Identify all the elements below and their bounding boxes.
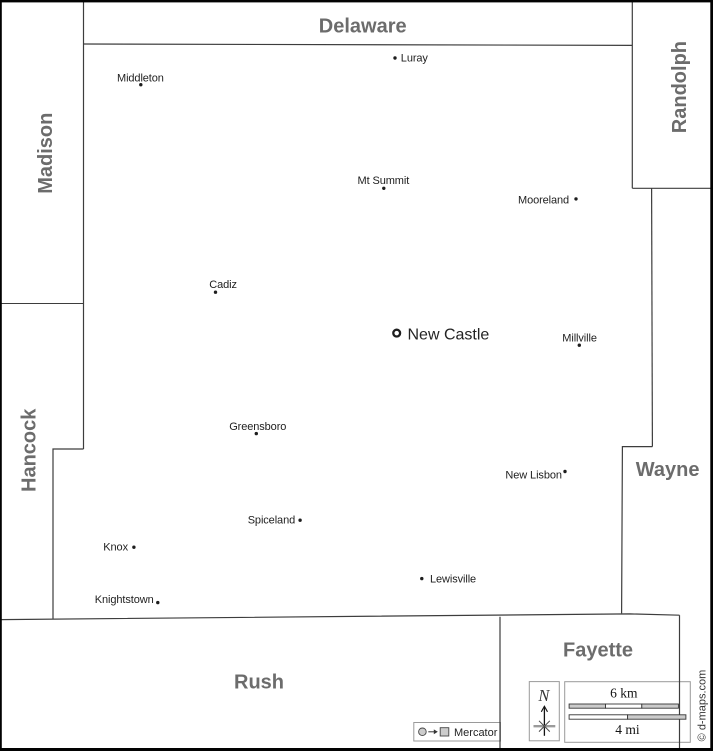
svg-text:4 mi: 4 mi	[615, 722, 640, 737]
svg-text:New Castle: New Castle	[408, 326, 490, 343]
svg-text:Greensboro: Greensboro	[229, 421, 286, 433]
svg-text:Mt Summit: Mt Summit	[358, 175, 410, 187]
svg-text:Millville: Millville	[562, 333, 597, 345]
svg-text:Madison: Madison	[35, 113, 57, 194]
svg-text:Middleton: Middleton	[117, 72, 164, 84]
svg-text:Cadiz: Cadiz	[209, 279, 237, 291]
svg-text:New Lisbon: New Lisbon	[505, 470, 561, 482]
svg-text:Spiceland: Spiceland	[248, 514, 295, 526]
svg-text:Randolph: Randolph	[669, 41, 691, 133]
svg-text:Rush: Rush	[234, 671, 284, 693]
svg-text:Delaware: Delaware	[319, 16, 407, 38]
svg-text:Mercator: Mercator	[454, 727, 498, 739]
svg-text:Luray: Luray	[401, 53, 429, 65]
svg-text:N: N	[537, 686, 550, 705]
svg-text:Knox: Knox	[103, 541, 128, 553]
svg-text:Lewisville: Lewisville	[430, 574, 476, 586]
svg-text:Mooreland: Mooreland	[518, 194, 569, 206]
svg-text:© d-maps.com: © d-maps.com	[696, 670, 708, 742]
svg-text:Wayne: Wayne	[636, 459, 700, 481]
svg-text:Hancock: Hancock	[19, 408, 41, 492]
svg-text:6 km: 6 km	[610, 686, 638, 701]
svg-text:Knightstown: Knightstown	[95, 594, 154, 606]
svg-text:Fayette: Fayette	[563, 640, 633, 662]
